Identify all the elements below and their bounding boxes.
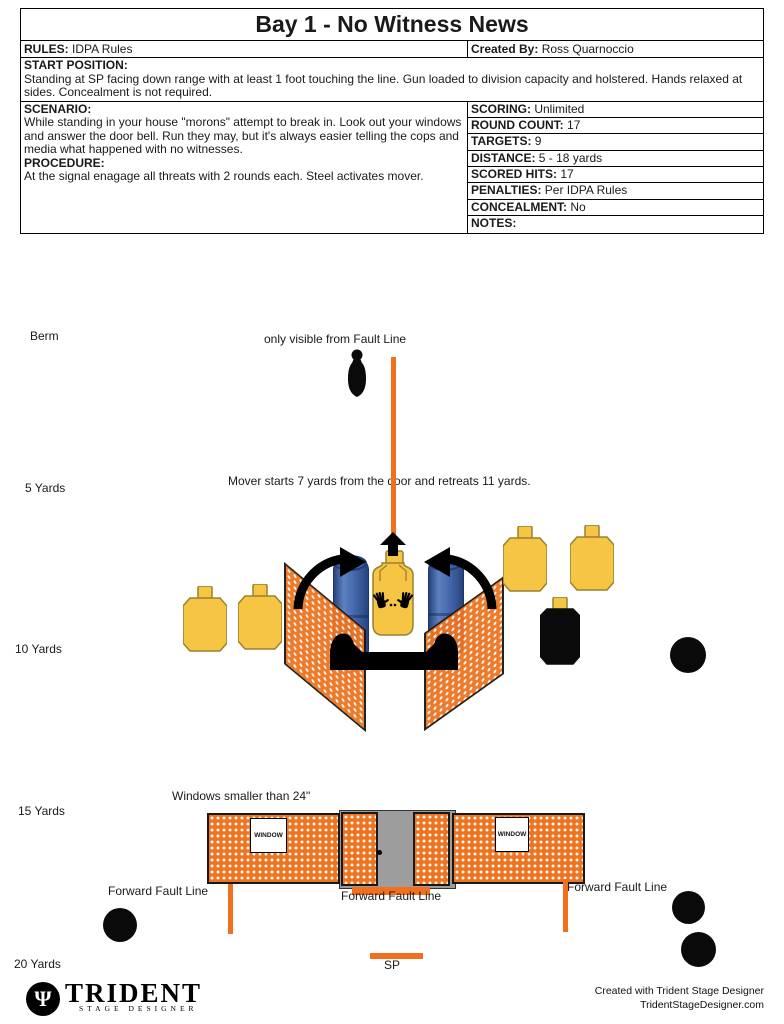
- trident-logo-text: TRIDENT STAGE DESIGNER: [65, 980, 202, 1013]
- stat-label: SCORED HITS:: [471, 167, 557, 181]
- stat-value: 17: [567, 118, 580, 132]
- procedure-label: PROCEDURE:: [24, 156, 105, 170]
- stat-value: No: [570, 200, 585, 214]
- stat-row-scored-hits: SCORED HITS: 17: [468, 167, 763, 183]
- stat-row-distance: DISTANCE: 5 - 18 yards: [468, 151, 763, 167]
- stat-row-concealment: CONCEALMENT: No: [468, 200, 763, 216]
- rules-cell: RULES: IDPA Rules: [21, 41, 468, 57]
- created-by-cell: Created By: Ross Quarnoccio: [468, 41, 763, 57]
- credit-line-1: Created with Trident Stage Designer: [595, 984, 764, 998]
- stat-label: TARGETS:: [471, 134, 531, 148]
- yard-label-berm: Berm: [30, 330, 59, 343]
- logo-subtitle: STAGE DESIGNER: [79, 1004, 202, 1013]
- start-position-label: START POSITION:: [24, 58, 128, 72]
- credit-text: Created with Trident Stage Designer Trid…: [595, 984, 764, 1012]
- trident-logo: Ψ TRIDENT STAGE DESIGNER: [26, 980, 202, 1016]
- start-position-cell: START POSITION: Standing at SP facing do…: [21, 58, 763, 102]
- popper-silhouette-icon: [345, 349, 369, 401]
- procedure-text: At the signal enagage all threats with 2…: [24, 169, 424, 183]
- steel-plate-icon: [681, 932, 716, 967]
- door-panel-right: [413, 812, 450, 886]
- rules-value: IDPA Rules: [72, 42, 132, 56]
- window-cutout: WINDOW: [495, 817, 529, 852]
- door-knob: [377, 850, 382, 855]
- idpa-target-icon: [570, 525, 614, 591]
- stat-label: NOTES:: [471, 216, 516, 230]
- scenario-label: SCENARIO:: [24, 102, 91, 116]
- idpa-target-icon: [503, 526, 547, 592]
- yard-label-5: 5 Yards: [25, 482, 65, 495]
- stage-info-table: Bay 1 - No Witness News RULES: IDPA Rule…: [20, 8, 764, 234]
- forward-fault-line-label-left: Forward Fault Line: [108, 885, 208, 898]
- forward-fault-line-label-center: Forward Fault Line: [341, 890, 441, 903]
- idpa-target-icon: [183, 586, 227, 652]
- yard-label-10: 10 Yards: [15, 643, 62, 656]
- steel-plate-icon: [670, 637, 706, 673]
- stats-column: SCORING: Unlimited ROUND COUNT: 17 TARGE…: [468, 102, 763, 233]
- trident-logo-icon: Ψ: [26, 982, 60, 1016]
- door-panel-left: [341, 812, 378, 886]
- forward-fault-line-left: [228, 884, 233, 934]
- stat-value: 5 - 18 yards: [539, 151, 602, 165]
- note-windows: Windows smaller than 24": [172, 790, 310, 803]
- window-label: WINDOW: [254, 832, 283, 839]
- stat-label: PENALTIES:: [471, 183, 541, 197]
- stat-label: SCORING:: [471, 102, 531, 116]
- stat-label: DISTANCE:: [471, 151, 535, 165]
- hardcover-target-icon: [540, 597, 580, 665]
- credit-line-2: TridentStageDesigner.com: [595, 998, 764, 1012]
- stat-row-scoring: SCORING: Unlimited: [468, 102, 763, 118]
- stat-label: ROUND COUNT:: [471, 118, 564, 132]
- forward-fault-line-label-right: Forward Fault Line: [567, 881, 667, 894]
- scenario-stats-row: SCENARIO: While standing in your house "…: [21, 102, 763, 233]
- steel-plate-icon: [103, 908, 137, 942]
- stat-row-targets: TARGETS: 9: [468, 134, 763, 150]
- yard-label-20: 20 Yards: [14, 958, 61, 971]
- window-label: WINDOW: [498, 831, 527, 838]
- rules-row: RULES: IDPA Rules Created By: Ross Quarn…: [21, 41, 763, 58]
- stage-design-sheet: Bay 1 - No Witness News RULES: IDPA Rule…: [0, 0, 784, 1024]
- idpa-target-icon: [238, 584, 282, 650]
- stat-value: 9: [535, 134, 542, 148]
- stat-value: Per IDPA Rules: [545, 183, 627, 197]
- stat-label: CONCEALMENT:: [471, 200, 567, 214]
- stat-row-notes: NOTES:: [468, 216, 763, 232]
- note-fault-visibility: only visible from Fault Line: [264, 333, 406, 346]
- start-position-text: Standing at SP facing down range with at…: [24, 72, 742, 100]
- stat-value: 17: [560, 167, 573, 181]
- logo-title: TRIDENT: [65, 980, 202, 1006]
- stat-row-round-count: ROUND COUNT: 17: [468, 118, 763, 134]
- note-mover: Mover starts 7 yards from the door and r…: [228, 475, 531, 488]
- yard-label-15: 15 Yards: [18, 805, 65, 818]
- rules-label: RULES:: [24, 42, 69, 56]
- created-by-value: Ross Quarnoccio: [542, 42, 634, 56]
- scenario-cell: SCENARIO: While standing in your house "…: [21, 102, 468, 233]
- steel-plate-icon: [672, 891, 705, 924]
- start-position-label-sp: SP: [384, 959, 400, 972]
- window-cutout: WINDOW: [250, 818, 287, 853]
- forward-fault-line-right: [563, 879, 568, 932]
- stat-value: Unlimited: [534, 102, 584, 116]
- page-title: Bay 1 - No Witness News: [21, 9, 763, 41]
- swing-arrow-icon: [290, 545, 500, 615]
- mover-track-line: [391, 357, 396, 536]
- stat-row-penalties: PENALTIES: Per IDPA Rules: [468, 183, 763, 199]
- created-by-label: Created By:: [471, 42, 538, 56]
- scenario-text: While standing in your house "morons" at…: [24, 115, 461, 156]
